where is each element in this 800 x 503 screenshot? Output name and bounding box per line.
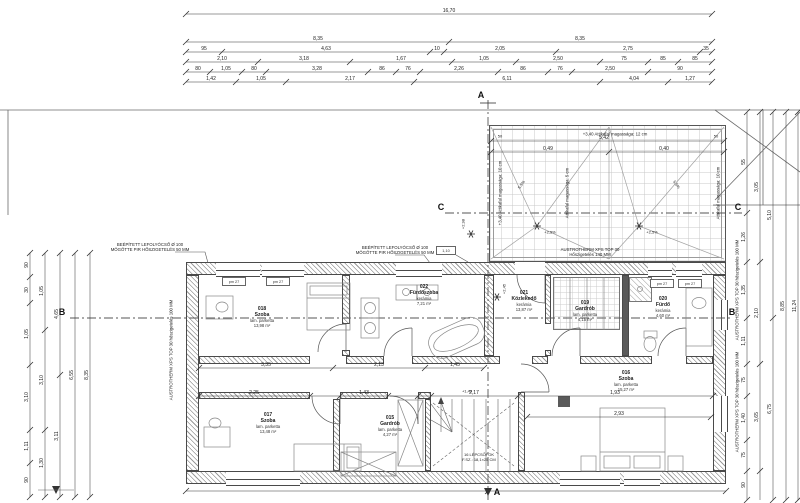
dim-label: 8,35	[575, 36, 585, 42]
dim-tick	[495, 69, 501, 75]
wall-interior	[686, 356, 713, 364]
wall-interior	[333, 399, 340, 471]
roof-attika-right: Attikafal magassága: 10 cm	[716, 167, 721, 220]
dim-label: 35	[703, 46, 709, 52]
dim-tick	[365, 69, 371, 75]
dim-label: 86	[379, 66, 385, 72]
stair-direction-arrow	[438, 397, 444, 404]
dim-tick	[27, 427, 33, 433]
wall-interior	[412, 356, 500, 364]
dim-tick	[183, 69, 189, 75]
dim-tick	[675, 59, 681, 65]
wall-left	[186, 275, 199, 471]
window	[216, 262, 260, 277]
dim-tick	[481, 365, 487, 371]
room-area: 4,60 m²	[656, 314, 671, 319]
dim-tick	[645, 69, 651, 75]
dim-label: 1,05	[479, 56, 489, 62]
window	[713, 396, 728, 432]
roof-xps-line2: Hőszigetelés 140 MM	[569, 252, 610, 257]
section-marker-c-left: C	[438, 202, 445, 212]
dim-label: 11,24	[792, 300, 798, 312]
dim-label: 90	[677, 66, 683, 72]
dim-label: 8,35	[313, 36, 323, 42]
dim-tick	[744, 109, 750, 115]
wall-interior	[199, 392, 310, 399]
parapet-mark: pm 27	[266, 277, 290, 286]
dim-tick	[709, 39, 715, 45]
dim-tick	[233, 79, 239, 85]
dim-tick	[427, 49, 433, 55]
roof-attika-inner-line	[493, 129, 722, 258]
dim-label: 5,10	[767, 210, 773, 220]
wall-interior	[545, 275, 551, 324]
dim-label: 1,67	[396, 56, 406, 62]
dim-label: 85	[692, 56, 698, 62]
dim-tick	[239, 69, 245, 75]
dim-tick	[744, 468, 750, 474]
dim-label: 1,05	[256, 76, 266, 82]
room-area: 13,87 m²	[511, 308, 536, 313]
dim-label: 1,05	[24, 329, 30, 339]
dim-tick	[27, 362, 33, 368]
window	[262, 262, 304, 277]
dim-tick	[57, 372, 63, 378]
wall-interior	[484, 275, 494, 356]
parapet-mark: pm 27	[678, 279, 702, 288]
xps-note-right-top: AUSTROTHERM XPS TOP 30 hőszigetelés 100 …	[735, 240, 740, 341]
window	[676, 262, 702, 277]
dim-tick	[545, 69, 551, 75]
dim-tick	[57, 250, 63, 256]
xps-note-left: AUSTROTHERM XPS TOP 30 hőszigetelés 100 …	[169, 300, 174, 401]
dim-tick	[744, 393, 750, 399]
dim-label: 3,65	[754, 412, 760, 422]
dim-label: 1,11	[741, 336, 747, 346]
dim-tick	[57, 494, 63, 500]
dim-tick	[330, 365, 336, 371]
section-marker-a-top: A	[478, 90, 485, 100]
dim-label: 1,11	[24, 441, 30, 451]
dim-tick	[183, 488, 189, 494]
dim-tick	[744, 259, 750, 265]
drain-note-left: BEÉPÍTETT LEFOLYÓCSŐ Ø 100 MÖGÖTTE PIR H…	[111, 242, 190, 252]
level-mark-245: +2,45	[502, 284, 507, 294]
dim-tick	[183, 79, 189, 85]
dim-label: 75	[741, 452, 747, 458]
room-area: 13,98 m²	[250, 324, 274, 329]
dim-label: 2,10	[754, 308, 760, 318]
dim-label: 76	[557, 66, 563, 72]
room-area: 13,48 m²	[256, 430, 280, 435]
dim-label: 6,11	[502, 76, 512, 82]
dim-label: 90	[24, 262, 30, 268]
dim-label: 10	[434, 46, 440, 52]
dim-tick	[411, 79, 417, 85]
dim-tick	[783, 497, 789, 503]
dim-label: 2,10	[217, 56, 227, 62]
dim-tick	[569, 69, 575, 75]
dim-label: 80	[251, 66, 257, 72]
roof-attika-left: +3,40 Attikafal magassága: 10 cm	[498, 161, 503, 226]
wall-interior	[518, 392, 525, 471]
dim-tick	[255, 59, 261, 65]
dim-tick	[795, 497, 800, 503]
dim-tick	[72, 494, 78, 500]
room-label-015: 015 Gardrób lam. parketta 4,27 m²	[378, 416, 402, 438]
dim-tick	[757, 468, 763, 474]
drain-note-center: BEÉPÍTETT LEFOLYÓCSŐ Ø 100 MÖGÖTTE PIR H…	[356, 245, 435, 255]
dim-tick	[744, 315, 750, 321]
dim-tick	[219, 49, 225, 55]
dim-label: 1,42	[206, 76, 216, 82]
dim-label: 75	[621, 56, 627, 62]
window	[396, 262, 442, 277]
room-label-016: 016 Szoba lam. parketta 15,27 m²	[614, 371, 638, 393]
dim-tick	[446, 39, 452, 45]
dim-tick	[42, 327, 48, 333]
dim-label: 30	[24, 287, 30, 293]
dim-tick	[72, 250, 78, 256]
dim-label: 3,28	[312, 66, 322, 72]
dim-tick	[665, 79, 671, 85]
parapet-mark: pm 27	[650, 279, 674, 288]
section-marker-b-left: B	[59, 307, 66, 317]
dim-label: 85	[660, 56, 666, 62]
dim-tick	[709, 59, 715, 65]
dim-tick	[709, 69, 715, 75]
dim-tick	[183, 59, 189, 65]
drain-slope-label: +2,5%	[646, 231, 657, 236]
dim-tick	[183, 39, 189, 45]
xps-note-right-bottom: AUSTROTHERM XPS TOP 30 hőszigetelés 100 …	[735, 352, 740, 453]
dim-tick	[42, 427, 48, 433]
dim-tick	[709, 79, 715, 85]
dim-tick	[513, 59, 519, 65]
dim-tick	[645, 59, 651, 65]
dim-tick	[283, 79, 289, 85]
window	[713, 300, 728, 330]
site-corner-marker	[52, 486, 60, 494]
wall-interior	[418, 392, 431, 399]
dim-tick	[422, 365, 428, 371]
room-label-020: 020 Fürdő kerámia 4,60 m²	[656, 297, 671, 319]
dim-label: 1,35	[741, 285, 747, 295]
room-area: 7,21 m²	[410, 302, 438, 307]
dim-tick	[27, 250, 33, 256]
dim-tick	[553, 49, 559, 55]
dim-label: 2,50	[553, 56, 563, 62]
roof-attika-mid: Attikafal magassága: 5 cm	[565, 168, 570, 218]
dim-tick	[597, 59, 603, 65]
dim-tick	[757, 361, 763, 367]
dim-tick	[770, 109, 776, 115]
dim-label: 2,17	[345, 76, 355, 82]
dim-tick	[757, 259, 763, 265]
drain-note-line2: MÖGÖTTE PIR HŐSZIGETELÉS 50 MM	[111, 247, 190, 252]
parapet-mark: pm 27	[222, 277, 246, 286]
room-area: 15,27 m²	[614, 388, 638, 393]
wall-interior	[340, 392, 388, 399]
window	[560, 471, 620, 486]
dim-label: 2,50	[605, 66, 615, 72]
dim-label: 1,26	[741, 232, 747, 242]
dim-tick	[744, 361, 750, 367]
drain-slope-label: +2,5%	[544, 231, 555, 236]
dim-tick	[723, 488, 729, 494]
dim-tick	[449, 59, 455, 65]
drain-note-line2: MÖGÖTTE PIR HŐSZIGETELÉS 50 MM	[356, 250, 435, 255]
dim-tick	[770, 315, 776, 321]
stair-note-line2: F.SZ.: 18,1×25 CM	[462, 457, 495, 462]
dim-tick	[597, 79, 603, 85]
dim-tick	[27, 494, 33, 500]
dim-tick	[183, 11, 189, 17]
dim-tick	[183, 49, 189, 55]
dim-label: 1,05	[39, 286, 45, 296]
dim-tick	[795, 109, 800, 115]
room-label-021: 021 Közlekedő kerámia 13,87 m²	[511, 291, 536, 313]
room-label-018: 018 Szoba lam. parketta 13,98 m²	[250, 307, 274, 329]
dim-label: 3,18	[299, 56, 309, 62]
dim-label: 6,75	[767, 404, 773, 414]
dim-label: 3,10	[24, 392, 30, 402]
dim-label: 1,40	[741, 413, 747, 423]
dim-label: 4,63	[321, 46, 331, 52]
dim-label: 90	[741, 482, 747, 488]
dim-tick	[770, 497, 776, 503]
dim-label: 76	[405, 66, 411, 72]
section-marker-c-right: C	[735, 202, 742, 212]
dim-label: 80	[195, 66, 201, 72]
dim-label: 16,70	[443, 8, 456, 14]
level-mark-149: +1,49	[462, 390, 472, 395]
stair-note: 16 LÉPCSŐFOK F.SZ.: 18,1×25 CM	[462, 453, 495, 463]
shower-020	[629, 277, 652, 302]
dim-label: 2,75	[623, 46, 633, 52]
dim-tick	[744, 497, 750, 503]
dim-label: 3,11	[54, 431, 60, 441]
section-marker-a-bottom: A	[494, 487, 501, 497]
dim-tick	[709, 49, 715, 55]
dim-tick	[42, 494, 48, 500]
detail-mark-box: 1,10	[436, 246, 456, 255]
dim-label: 55	[741, 159, 747, 165]
section-marker-b-right: B	[729, 307, 736, 317]
dim-label: 3,05	[754, 182, 760, 192]
dim-tick	[441, 49, 447, 55]
window	[648, 262, 672, 277]
dim-tick	[87, 250, 93, 256]
dim-label: 3,10	[39, 375, 45, 385]
dim-tick	[27, 460, 33, 466]
roof-attika-note: +3,40 Attikafal magassága: 12 cm	[583, 131, 648, 136]
room-label-022: 022 Fürdőszoba kerámia 7,21 m²	[410, 285, 438, 307]
dim-tick	[42, 250, 48, 256]
floor-plan-sheet: 16,708,358,35954,63102,052,75352,103,181…	[0, 0, 800, 503]
wall-interior-new	[622, 275, 629, 356]
dim-tick	[783, 109, 789, 115]
dim-label: 8,85	[780, 301, 786, 311]
dim-tick	[27, 274, 33, 280]
wall-interior	[199, 356, 310, 364]
roof-xps-note: AUSTROTHERM XPS TOP 30 Hőszigetelés 140 …	[561, 247, 620, 257]
level-mark-298: +2,98	[461, 219, 466, 229]
dim-tick	[87, 494, 93, 500]
room-label-017: 017 Szoba lam. parketta 13,48 m²	[256, 413, 280, 435]
dim-tick	[697, 49, 703, 55]
dim-label: 1,30	[39, 458, 45, 468]
dim-label: 2,26	[454, 66, 464, 72]
wall-interior	[532, 356, 548, 364]
wall-interior	[425, 399, 431, 471]
wall-interior	[580, 356, 652, 364]
dim-label: 4,04	[629, 76, 639, 82]
section-a-bottom-arrow	[484, 488, 492, 496]
dim-tick	[207, 69, 213, 75]
dim-label: 6,55	[69, 370, 75, 380]
dim-label: 8,35	[84, 370, 90, 380]
dim-label: 1,27	[685, 76, 695, 82]
room-area: 4,27 m²	[378, 433, 402, 438]
wall-interior	[346, 356, 384, 364]
room-label-019: 019 Gardrób lam. parketta 4,15 m²	[573, 301, 597, 323]
roof-edge-dim: 50	[498, 135, 502, 140]
terrace-door-opening	[515, 262, 545, 275]
dim-tick	[27, 300, 33, 306]
room-area: 4,15 m²	[573, 318, 597, 323]
dim-tick	[347, 59, 353, 65]
dim-tick	[393, 69, 399, 75]
dim-label: 90	[24, 477, 30, 483]
roof-edge-dim: 50	[714, 135, 718, 140]
dim-label: 86	[520, 66, 526, 72]
wall-interior	[342, 275, 350, 324]
dim-tick	[709, 11, 715, 17]
dim-tick	[757, 109, 763, 115]
dim-label: 75	[741, 377, 747, 383]
dim-tick	[417, 69, 423, 75]
shaft-solid	[558, 396, 570, 407]
dim-label: 2,05	[495, 46, 505, 52]
dim-label: 1,05	[221, 66, 231, 72]
dim-label: 2,93	[614, 411, 624, 417]
dim-tick	[263, 69, 269, 75]
window	[226, 471, 300, 486]
window	[624, 471, 660, 486]
dim-tick	[744, 437, 750, 443]
dim-tick	[485, 488, 491, 494]
dim-label: 95	[201, 46, 207, 52]
dim-tick	[744, 210, 750, 216]
